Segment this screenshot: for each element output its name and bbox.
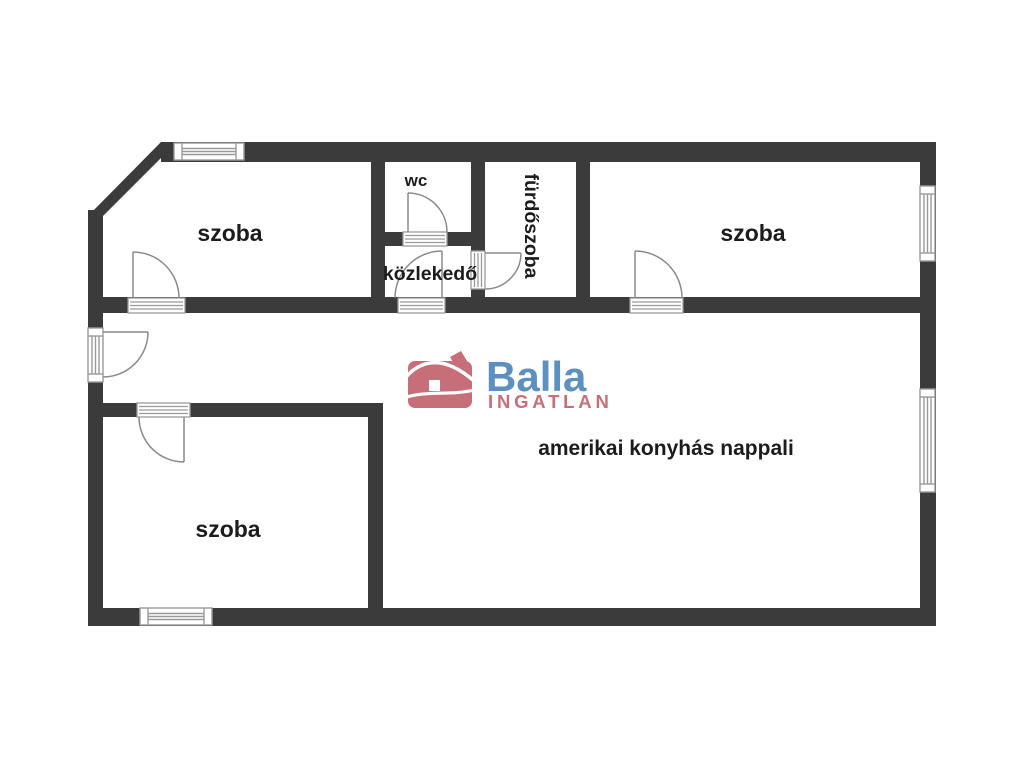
outer-top-wall [161, 142, 936, 162]
window-room3-bottom [140, 608, 212, 625]
room3-right-wall [368, 403, 383, 626]
door-thresholds [128, 232, 683, 417]
label-room-top-right: szoba [720, 220, 785, 246]
window-living-left-balcony [88, 328, 103, 382]
door-room2 [635, 251, 682, 298]
threshold-room2-door [630, 298, 683, 313]
label-bathroom: fürdőszoba [520, 173, 542, 278]
room3-top-wall [88, 403, 383, 417]
wall-room1-wc [371, 162, 385, 313]
window-living-right [920, 389, 935, 492]
middle-wall [88, 297, 936, 313]
label-living-room: amerikai konyhás nappali [538, 437, 794, 460]
floor-plan-page: szoba wc közlekedő fürdőszoba szoba amer… [0, 0, 1024, 768]
wc-bottom-wall-right [447, 232, 471, 246]
threshold-room3-door [137, 403, 190, 417]
logo-house-window [429, 380, 440, 391]
door-bathroom [485, 253, 521, 289]
wall-bathroom-room2 [576, 162, 590, 313]
logo-subtitle-text: INGATLAN [488, 391, 613, 412]
label-room-top-left: szoba [197, 220, 262, 246]
label-room-bottom-left: szoba [195, 516, 260, 542]
wc-bottom-wall-left [385, 232, 403, 246]
door-room3 [139, 417, 184, 462]
outer-left-wall [88, 210, 103, 626]
logo-house-icon [402, 351, 474, 408]
threshold-room1-door [128, 298, 185, 313]
label-wc: wc [404, 171, 428, 190]
outer-diagonal-wall [88, 142, 177, 216]
door-room1 [133, 252, 179, 298]
door-living-balcony [103, 332, 148, 377]
window-room2-right [920, 186, 935, 261]
threshold-hallway-door [398, 298, 445, 313]
wall-wc-bathroom [471, 162, 485, 313]
door-wc [408, 193, 447, 232]
label-hallway: közlekedő [383, 263, 477, 285]
watermark-logo: Balla INGATLAN [402, 351, 613, 412]
floor-plan: szoba wc közlekedő fürdőszoba szoba amer… [0, 0, 1024, 768]
threshold-wc-door [403, 232, 447, 246]
outer-bottom-wall [88, 608, 936, 626]
window-room1-top [174, 143, 244, 160]
